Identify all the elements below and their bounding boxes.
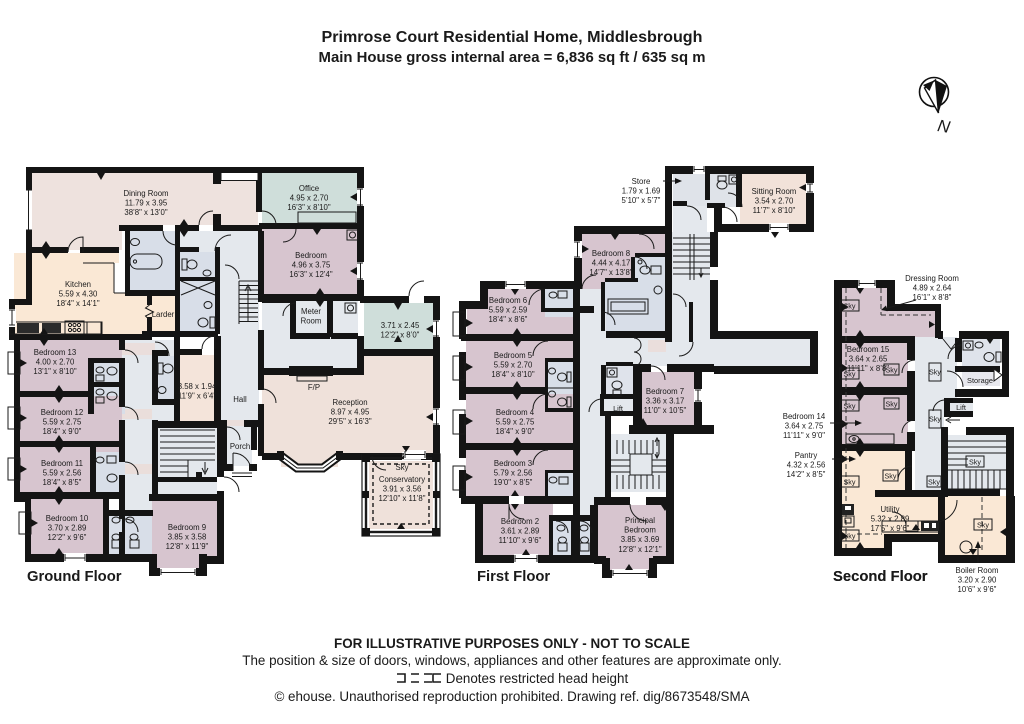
- svg-text:Denotes restricted head height: Denotes restricted head height: [446, 671, 629, 686]
- svg-text:Bedroom 35.79 x 2.5619’0" x 8’: Bedroom 35.79 x 2.5619’0" x 8’5": [494, 459, 533, 487]
- svg-text:Reception8.97 x 4.9529’5" x 16: Reception8.97 x 4.9529’5" x 16’3": [328, 398, 371, 426]
- svg-text:Main House gross internal area: Main House gross internal area = 6,836 s…: [319, 50, 706, 66]
- svg-text:Primrose Court Residential Hom: Primrose Court Residential Home, Middles…: [322, 28, 703, 46]
- svg-text:Dressing Room4.89 x 2.6416’1": Dressing Room4.89 x 2.6416’1" x 8’8": [905, 274, 959, 302]
- svg-text:Sky: Sky: [929, 368, 941, 377]
- svg-text:© ehouse. Unauthorised reprodu: © ehouse. Unauthorised reproduction proh…: [274, 689, 749, 704]
- svg-text:3.71 x 2.4512’2" x 8’0": 3.71 x 2.4512’2" x 8’0": [381, 321, 420, 340]
- svg-text:Bedroom 23.61 x 2.8911’10" x 9: Bedroom 23.61 x 2.8911’10" x 9’6": [499, 517, 542, 545]
- svg-text:FOR ILLUSTRATIVE PURPOSES ONLY: FOR ILLUSTRATIVE PURPOSES ONLY - NOT TO …: [334, 636, 690, 651]
- svg-text:Bedroom4.96 x 3.7516’3" x 12’4: Bedroom4.96 x 3.7516’3" x 12’4": [289, 251, 332, 279]
- svg-text:Bedroom 125.59 x 2.7518’4" x 9: Bedroom 125.59 x 2.7518’4" x 9’0": [41, 408, 83, 436]
- svg-text:Bedroom 134.00 x 2.7013’1" x 8: Bedroom 134.00 x 2.7013’1" x 8’10": [33, 348, 76, 376]
- svg-text:Lift: Lift: [613, 404, 623, 413]
- svg-text:Bedroom 84.44 x 4.1714’7" x 13: Bedroom 84.44 x 4.1714’7" x 13’8": [589, 249, 632, 277]
- svg-text:Bedroom 73.36 x 3.1711’0" x 10: Bedroom 73.36 x 3.1711’0" x 10’5": [644, 387, 687, 415]
- svg-text:Lift: Lift: [956, 403, 966, 412]
- svg-text:Sky: Sky: [844, 402, 856, 411]
- svg-text:Sky: Sky: [969, 458, 981, 467]
- svg-text:First Floor: First Floor: [477, 569, 550, 585]
- svg-text:Sky: Sky: [844, 478, 856, 487]
- svg-text:Sky: Sky: [977, 521, 989, 530]
- svg-text:Larder: Larder: [152, 310, 175, 319]
- svg-text:Sitting Room3.54 x 2.7011’7" x: Sitting Room3.54 x 2.7011’7" x 8’10": [752, 187, 797, 215]
- svg-text:Bedroom 55.59 x 2.7018’4" x 8’: Bedroom 55.59 x 2.7018’4" x 8’10": [491, 351, 534, 379]
- svg-text:Sky: Sky: [886, 400, 898, 409]
- svg-text:Bedroom 115.59 x 2.5618’4" x 8: Bedroom 115.59 x 2.5618’4" x 8’5": [41, 459, 83, 487]
- svg-text:Porch: Porch: [230, 442, 250, 451]
- svg-text:Sky: Sky: [928, 478, 940, 487]
- svg-text:Bedroom 65.59 x 2.5918’4" x 8’: Bedroom 65.59 x 2.5918’4" x 8’6": [489, 296, 528, 324]
- svg-text:Boiler Room3.20 x 2.9010’6" x: Boiler Room3.20 x 2.9010’6" x 9’6": [956, 566, 999, 594]
- svg-text:Second Floor: Second Floor: [833, 569, 928, 585]
- svg-text:F/P: F/P: [308, 383, 320, 392]
- svg-text:Bedroom 103.70 x 2.8912’2" x 9: Bedroom 103.70 x 2.8912’2" x 9’6": [46, 514, 89, 542]
- svg-text:Sky: Sky: [885, 472, 897, 481]
- svg-text:Bedroom 45.59 x 2.7518’4" x 9’: Bedroom 45.59 x 2.7518’4" x 9’0": [496, 408, 535, 436]
- svg-text:Hall: Hall: [233, 395, 247, 404]
- svg-text:3.58 x 1.9411’9" x 6’4": 3.58 x 1.9411’9" x 6’4": [178, 382, 217, 401]
- svg-text:The position & size of doors,: The position & size of doors, windows, a…: [242, 653, 781, 668]
- svg-text:MeterRoom: MeterRoom: [301, 307, 322, 326]
- svg-text:Bedroom 93.85 x 3.5812’8" x 11: Bedroom 93.85 x 3.5812’8" x 11’9": [166, 523, 209, 551]
- svg-text:Bedroom 143.64 x 2.7511’11" x: Bedroom 143.64 x 2.7511’11" x 9’0": [783, 412, 826, 440]
- svg-text:Storage: Storage: [967, 376, 993, 385]
- svg-text:Ground Floor: Ground Floor: [27, 569, 122, 585]
- svg-text:Dining Room11.79 x 3.9538’8" x: Dining Room11.79 x 3.9538’8" x 13’0": [123, 189, 168, 217]
- svg-text:Sky: Sky: [929, 415, 941, 424]
- svg-text:Bedroom 153.64 x 2.6511’11" x: Bedroom 153.64 x 2.6511’11" x 8’8": [847, 345, 890, 373]
